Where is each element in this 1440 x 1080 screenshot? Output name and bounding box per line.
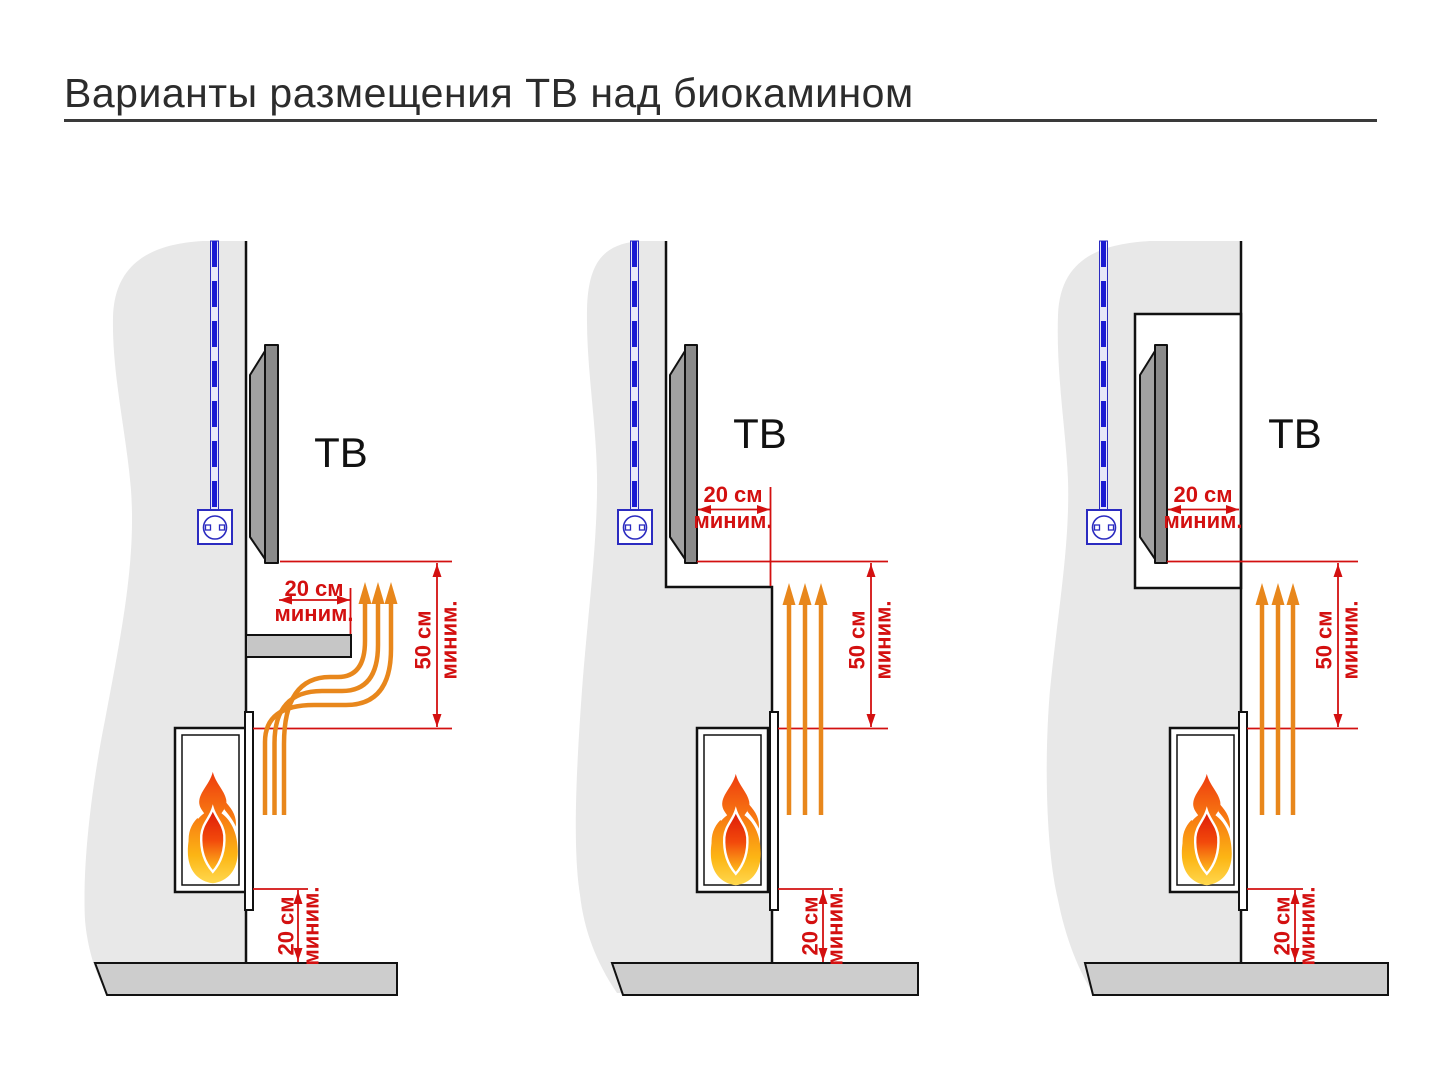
power-cable bbox=[631, 241, 639, 510]
power-outlet-icon bbox=[198, 510, 232, 544]
floor bbox=[1085, 963, 1388, 995]
power-cable bbox=[1100, 241, 1108, 510]
dim-floor-clearance-qualifier: миним. bbox=[1295, 887, 1320, 966]
panel-3-scene: 20 см миним. 50 см миним. 20 см миним. Т… bbox=[1010, 230, 1440, 1010]
fireplace-glass bbox=[770, 712, 778, 910]
dim-tv-clearance-value: 20 см bbox=[284, 576, 343, 601]
dim-tv-clearance-value: 20 см bbox=[1173, 482, 1232, 507]
fireplace-glass bbox=[1239, 712, 1247, 910]
dim-above-fireplace-qualifier: миним. bbox=[437, 601, 462, 680]
power-outlet-icon bbox=[618, 510, 652, 544]
floor bbox=[612, 963, 918, 995]
tv-label: ТВ bbox=[314, 429, 368, 476]
dim-tv-clearance-value: 20 см bbox=[703, 482, 762, 507]
panel-2-scene: 20 см миним. 50 см миним. 20 см миним. Т… bbox=[550, 230, 970, 1010]
tv-side-view bbox=[250, 345, 278, 563]
dim-floor-clearance-value: 20 см bbox=[1270, 896, 1295, 955]
fireplace bbox=[175, 712, 253, 910]
floor bbox=[95, 963, 397, 995]
dim-above-fireplace-value: 50 см bbox=[411, 610, 436, 669]
power-cable bbox=[211, 241, 219, 510]
dim-floor-clearance-value: 20 см bbox=[798, 896, 823, 955]
dim-floor-clearance-value: 20 см bbox=[274, 896, 299, 955]
heat-flow-arrows bbox=[783, 583, 828, 815]
fireplace bbox=[1170, 712, 1247, 910]
dim-floor-clearance-qualifier: миним. bbox=[299, 887, 324, 966]
dim-above-fireplace-qualifier: миним. bbox=[1338, 601, 1363, 680]
page-title: Варианты размещения ТВ над биокамином bbox=[64, 70, 914, 117]
title-underline bbox=[64, 119, 1377, 122]
heat-flow-arrows bbox=[1256, 583, 1300, 815]
dim-above-fireplace-value: 50 см bbox=[1312, 610, 1337, 669]
dim-tv-clearance-qualifier: миним. bbox=[1164, 508, 1243, 533]
dim-tv-clearance-qualifier: миним. bbox=[275, 601, 354, 626]
dim-above-fireplace-qualifier: миним. bbox=[871, 601, 896, 680]
tv-label: ТВ bbox=[733, 410, 787, 457]
panel-1-scene: 20 см миним. 50 см миним. 20 см миним. Т… bbox=[60, 230, 480, 1010]
protective-shelf bbox=[246, 635, 351, 657]
dim-above-fireplace-value: 50 см bbox=[845, 610, 870, 669]
dim-tv-clearance-qualifier: миним. bbox=[694, 508, 773, 533]
power-outlet-icon bbox=[1087, 510, 1121, 544]
fireplace bbox=[697, 712, 778, 910]
fireplace-glass bbox=[245, 712, 253, 910]
dim-floor-clearance-qualifier: миним. bbox=[823, 887, 848, 966]
tv-label: ТВ bbox=[1268, 410, 1322, 457]
diagram-canvas: Варианты размещения ТВ над биокамином bbox=[0, 0, 1440, 1080]
